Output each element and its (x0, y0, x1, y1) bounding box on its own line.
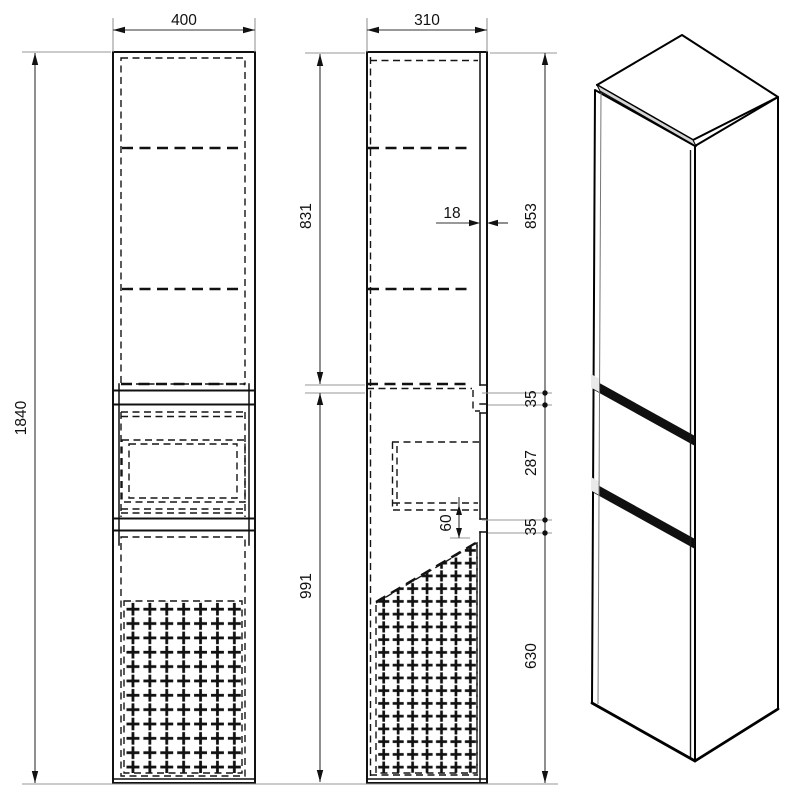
dim-chain-drawer-label: 287 (523, 450, 540, 476)
dim-chain-gap1-label: 35 (523, 390, 540, 407)
iso-side-face (695, 97, 778, 761)
front-view (113, 52, 255, 783)
iso-top-edge-strip (597, 85, 696, 146)
dim-front-width-label: 400 (171, 12, 197, 29)
front-band-upper (113, 391, 255, 405)
dim-total-height: 1840 (13, 53, 38, 783)
dim-door-thickness: 18 (436, 205, 508, 226)
front-drawer-recess-inner (129, 444, 237, 498)
front-upper-door-hidden (121, 58, 245, 384)
dim-total-height-label: 1840 (13, 400, 30, 435)
dim-side-depth-label: 310 (414, 12, 440, 29)
side-view (367, 52, 487, 783)
dim-drawer-clearance-label: 60 (438, 514, 455, 532)
iso-left-panel-edge (598, 93, 601, 704)
side-door-front-edges (480, 53, 487, 783)
iso-groove-upper-notch (591, 374, 599, 392)
technical-drawing-canvas: 400 310 1840 831 991 (0, 0, 800, 800)
dim-upper-door: 831 (298, 54, 323, 384)
dim-chain-top-label: 853 (523, 203, 540, 229)
iso-groove-lower (594, 483, 695, 549)
dim-upper-door-label: 831 (298, 203, 315, 229)
side-basket (376, 543, 477, 773)
dim-lower-section-label: 991 (298, 573, 315, 599)
iso-front-face (592, 90, 695, 761)
dim-side-depth: 310 (367, 12, 487, 33)
dim-chain-bottom-label: 630 (523, 643, 540, 669)
dim-right-chain: 853 35 287 35 630 (523, 53, 548, 783)
front-basket (124, 601, 242, 773)
dim-front-width: 400 (113, 12, 255, 33)
dim-chain-gap2-label: 35 (523, 518, 540, 535)
front-drawer-recess-outer (122, 440, 245, 502)
dim-door-thickness-label: 18 (443, 205, 460, 222)
iso-groove-upper (594, 380, 695, 446)
iso-top-face (597, 35, 778, 140)
dim-lower-section: 991 (298, 393, 323, 782)
front-band-lower (113, 519, 255, 531)
isometric-view (591, 35, 778, 761)
